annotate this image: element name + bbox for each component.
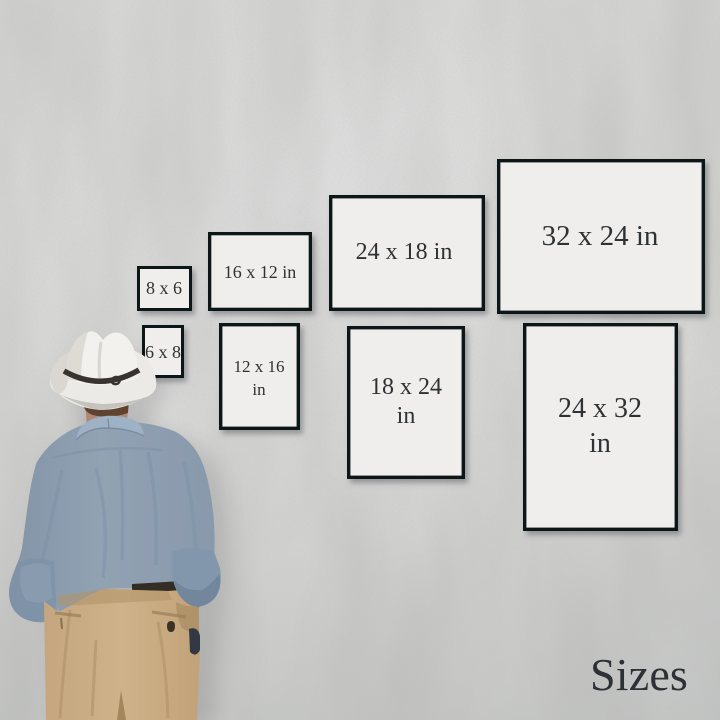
svg-text:24 x 32: 24 x 32 (558, 393, 642, 424)
svg-text:18 x 24: 18 x 24 (370, 374, 442, 400)
svg-text:6 x 8: 6 x 8 (145, 342, 181, 362)
svg-text:in: in (397, 403, 416, 429)
svg-text:8 x 6: 8 x 6 (146, 278, 182, 298)
svg-text:24 x 18 in: 24 x 18 in (356, 239, 453, 265)
svg-text:in: in (252, 380, 266, 399)
svg-text:16 x 12 in: 16 x 12 in (224, 262, 297, 282)
svg-text:Sizes: Sizes (590, 649, 688, 700)
svg-text:32 x 24 in: 32 x 24 in (542, 220, 659, 252)
svg-text:12 x 16: 12 x 16 (234, 357, 285, 376)
svg-text:in: in (589, 428, 611, 459)
